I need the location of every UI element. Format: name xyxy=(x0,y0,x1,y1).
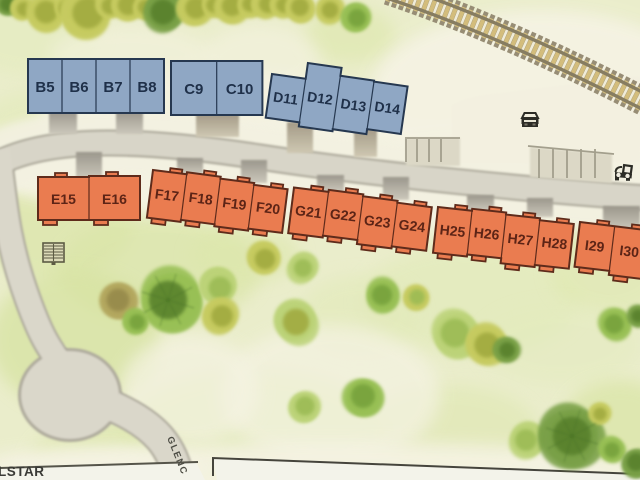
svg-text:F18: F18 xyxy=(188,189,214,208)
svg-text:E15: E15 xyxy=(51,191,76,207)
svg-text:G23: G23 xyxy=(363,212,391,231)
svg-text:C10: C10 xyxy=(226,81,254,98)
svg-text:B5: B5 xyxy=(35,79,54,96)
svg-text:H25: H25 xyxy=(439,221,466,240)
svg-text:I29: I29 xyxy=(584,237,605,255)
svg-text:E16: E16 xyxy=(102,191,127,207)
svg-text:G21: G21 xyxy=(294,202,322,221)
svg-text:G22: G22 xyxy=(329,205,357,224)
svg-text:G24: G24 xyxy=(398,216,426,235)
svg-text:B8: B8 xyxy=(137,79,156,96)
svg-text:H27: H27 xyxy=(507,230,534,249)
svg-text:F19: F19 xyxy=(221,194,247,213)
svg-text:C9: C9 xyxy=(184,81,203,98)
svg-text:H26: H26 xyxy=(473,224,500,243)
svg-text:LSTAR: LSTAR xyxy=(0,464,45,479)
svg-text:B6: B6 xyxy=(69,79,88,96)
svg-text:B7: B7 xyxy=(103,79,122,96)
svg-text:F17: F17 xyxy=(154,185,180,204)
svg-text:F20: F20 xyxy=(255,198,281,217)
svg-text:H28: H28 xyxy=(541,234,568,253)
svg-text:I30: I30 xyxy=(619,242,640,260)
